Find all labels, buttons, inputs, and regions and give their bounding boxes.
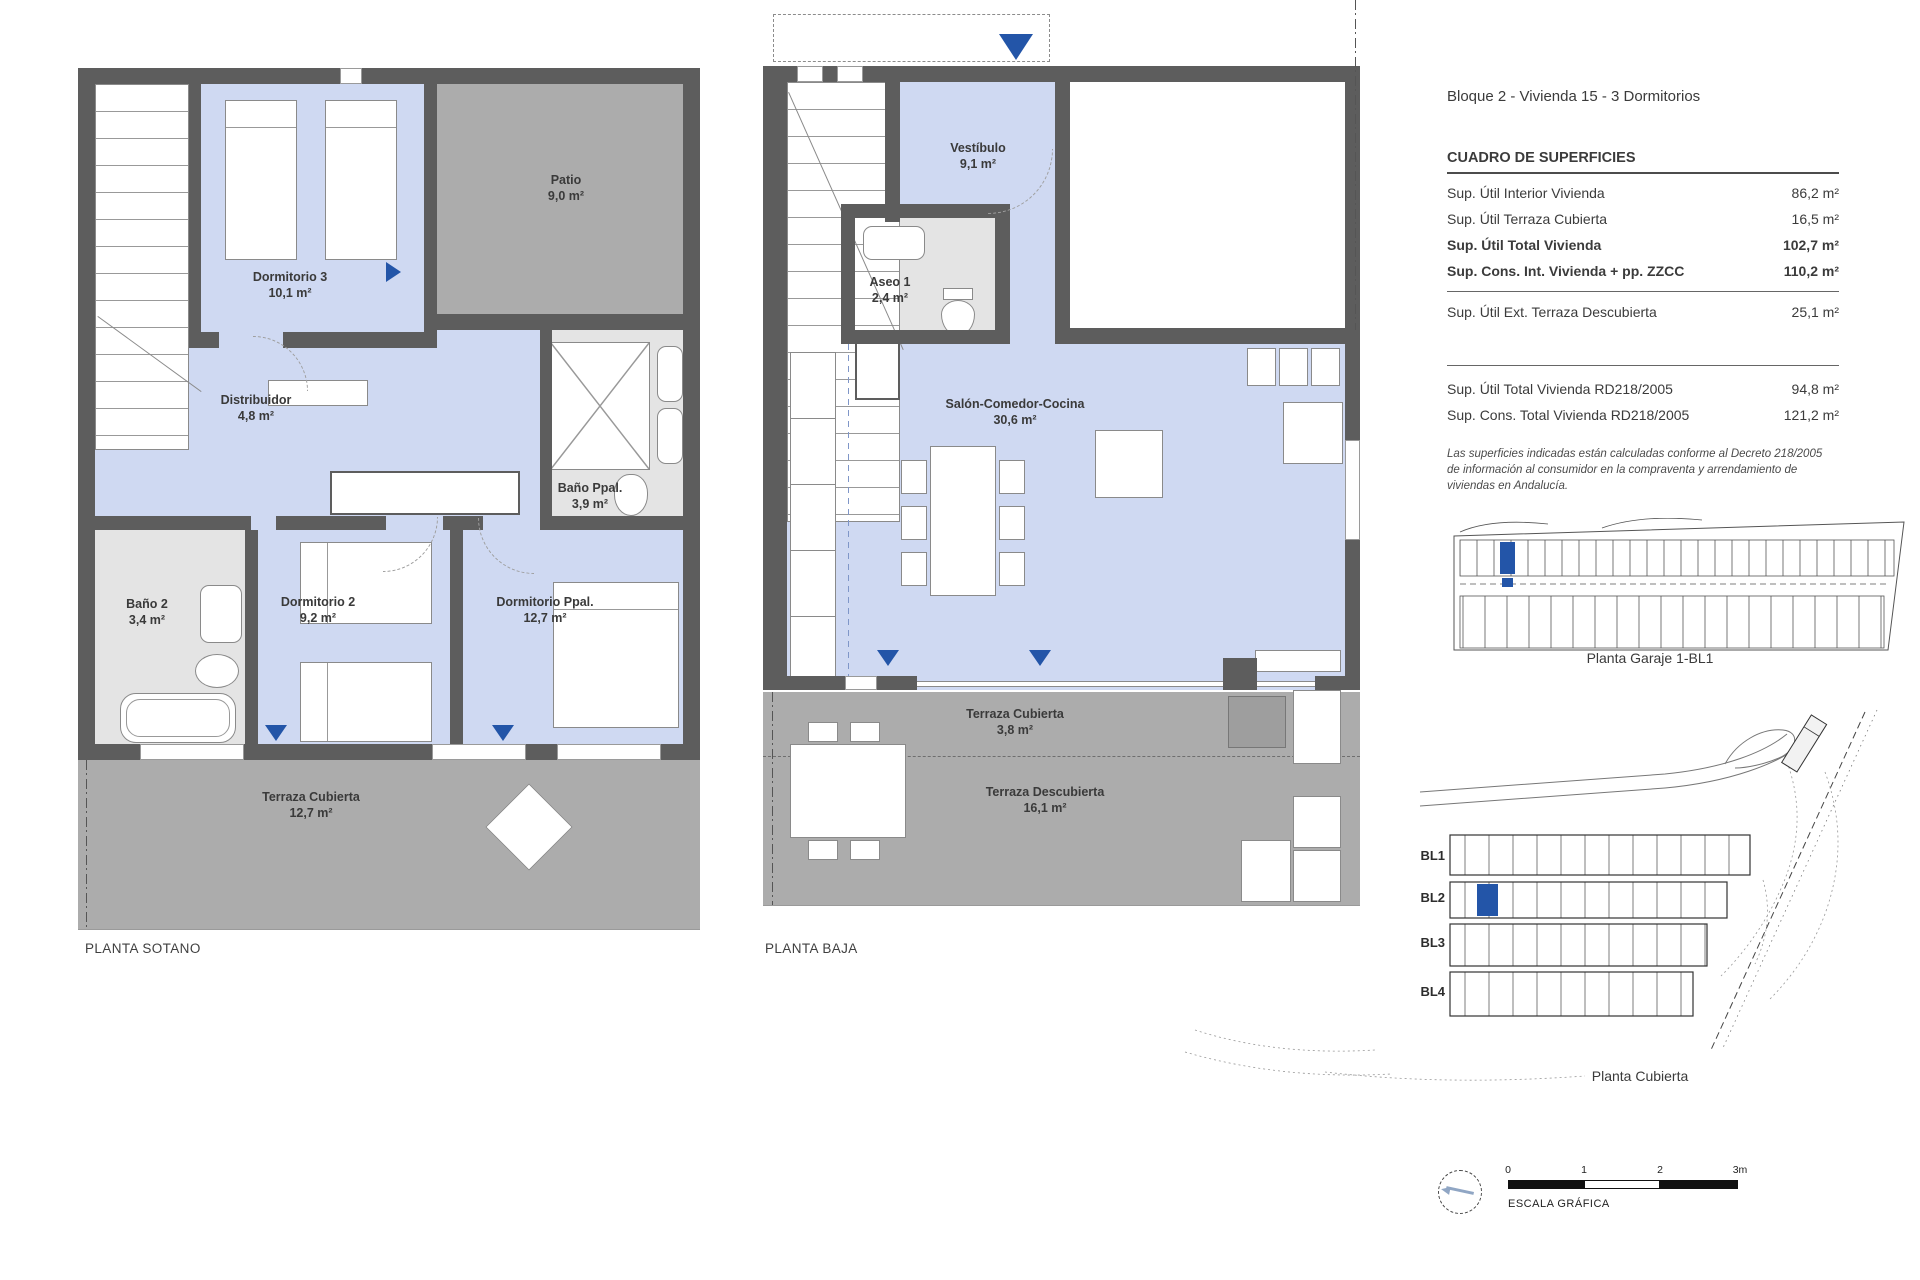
room-area: 16,1 m² [986, 800, 1105, 816]
surface-value: 110,2 m² [1784, 258, 1839, 284]
window [140, 744, 244, 760]
room-area: 2,4 m² [870, 290, 911, 306]
room-name: Salón-Comedor-Cocina [946, 396, 1085, 412]
room-name: Aseo 1 [870, 274, 911, 290]
room-label-vestibulo: Vestíbulo 9,1 m² [950, 140, 1006, 172]
surface-row: Sup. Útil Total Vivienda RD218/2005 94,8… [1447, 376, 1839, 402]
page-title: Bloque 2 - Vivienda 15 - 3 Dormitorios [1447, 88, 1700, 105]
terrace-edge [78, 929, 700, 930]
surface-value: 102,7 m² [1783, 232, 1839, 258]
window [845, 676, 877, 690]
window [837, 66, 863, 82]
chair [999, 460, 1025, 494]
sink [657, 408, 683, 464]
room-name: Dormitorio Ppal. [496, 594, 593, 610]
wall [540, 516, 683, 530]
wall [1345, 66, 1360, 690]
armchair [1095, 430, 1163, 498]
party-line [1355, 0, 1356, 330]
wall [424, 84, 437, 348]
room-area: 9,2 m² [281, 610, 355, 626]
wall [443, 516, 483, 530]
room-area: 12,7 m² [496, 610, 593, 626]
dining-table [930, 446, 996, 596]
surface-value: 121,2 m² [1784, 402, 1839, 428]
window-marker-icon [386, 262, 401, 282]
room-name: Vestíbulo [950, 140, 1006, 156]
chair [808, 722, 838, 742]
window [1257, 681, 1315, 687]
separator [1447, 365, 1839, 366]
block-label-bl1: BL1 [1405, 848, 1445, 863]
room-name: Dormitorio 3 [253, 269, 327, 285]
room-area: 3,8 m² [966, 722, 1064, 738]
sofa-seat [1311, 348, 1340, 386]
block-label-bl3: BL3 [1405, 935, 1445, 950]
room-area: 10,1 m² [253, 285, 327, 301]
site-drawing [1165, 700, 1905, 1090]
sink [657, 346, 683, 402]
window [1345, 440, 1360, 540]
wall [1055, 82, 1070, 344]
wall [245, 530, 258, 744]
wall [78, 68, 95, 760]
surface-label: Sup. Útil Terraza Cubierta [1447, 206, 1607, 232]
window [557, 744, 661, 760]
surface-row: Sup. Útil Total Vivienda 102,7 m² [1447, 232, 1839, 258]
room-name: Terraza Cubierta [262, 789, 360, 805]
chair [808, 840, 838, 860]
room-label-aseo: Aseo 1 2,4 m² [870, 274, 911, 306]
surface-row: Sup. Útil Interior Vivienda 86,2 m² [1447, 180, 1839, 206]
surfaces-disclaimer: Las superficies indicadas están calculad… [1447, 446, 1831, 494]
scale-tick: 0 [1505, 1164, 1511, 1176]
scale-segment [1660, 1180, 1738, 1189]
shower-cross-icon [551, 343, 649, 469]
surface-value: 25,1 m² [1792, 299, 1839, 325]
bed [325, 100, 397, 260]
wall [787, 676, 845, 690]
compass-needle-tip [1440, 1185, 1450, 1195]
surfaces-title: CUADRO DE SUPERFICIES [1447, 150, 1839, 174]
surface-label: Sup. Cons. Total Vivienda RD218/2005 [1447, 402, 1689, 428]
wall [189, 84, 201, 332]
surface-row: Sup. Útil Terraza Cubierta 16,5 m² [1447, 206, 1839, 232]
wall [95, 516, 251, 530]
chair [850, 840, 880, 860]
kitchen-counter [790, 352, 836, 684]
armchair [1283, 402, 1343, 464]
kitchen-boundary-line [848, 344, 849, 690]
scale-tick: 2 [1657, 1164, 1663, 1176]
surface-label: Sup. Útil Ext. Terraza Descubierta [1447, 299, 1657, 325]
wall [841, 218, 855, 344]
floorplan-sheet: Dormitorio 3 10,1 m² Patio 9,0 m² Distri… [0, 0, 1920, 1280]
plan-caption-baja: PLANTA BAJA [765, 941, 858, 956]
room-area: 3,9 m² [558, 496, 623, 512]
wall [1315, 676, 1360, 690]
plan-caption-sotano: PLANTA SOTANO [85, 941, 201, 956]
room-name: Dormitorio 2 [281, 594, 355, 610]
block-label-bl2: BL2 [1405, 890, 1445, 905]
bed [300, 662, 432, 742]
room-label-bano2: Baño 2 3,4 m² [126, 596, 168, 628]
wall [1223, 658, 1257, 690]
tv-bench [1255, 650, 1341, 672]
wall [855, 330, 1010, 344]
surface-row: Sup. Cons. Total Vivienda RD218/2005 121… [1447, 402, 1839, 428]
room-label-dormitorio-ppal: Dormitorio Ppal. 12,7 m² [496, 594, 593, 626]
window [432, 744, 526, 760]
toilet [195, 654, 239, 688]
wall [763, 66, 787, 690]
surface-label: Sup. Útil Total Vivienda [1447, 232, 1601, 258]
window-marker-icon [1029, 650, 1051, 666]
chair [999, 552, 1025, 586]
toilet-tank [943, 288, 973, 300]
scale-segment [1584, 1180, 1660, 1189]
room-label-salon: Salón-Comedor-Cocina 30,6 m² [946, 396, 1085, 428]
chair [999, 506, 1025, 540]
garage-drawing [1452, 518, 1908, 658]
room-label-bano-ppal: Baño Ppal. 3,9 m² [558, 480, 623, 512]
bathtub [120, 693, 236, 743]
wall [78, 68, 700, 84]
room-label-dormitorio3: Dormitorio 3 10,1 m² [253, 269, 327, 301]
wall [424, 314, 683, 330]
wall [995, 218, 1010, 344]
sofa-seat [1279, 348, 1308, 386]
room-area: 9,1 m² [950, 156, 1006, 172]
chair [901, 506, 927, 540]
room-name: Baño 2 [126, 596, 168, 612]
room-label-distribuidor: Distribuidor 4,8 m² [221, 392, 292, 424]
window [340, 68, 362, 84]
garage-caption: Planta Garaje 1-BL1 [1587, 650, 1714, 666]
wall [540, 330, 552, 530]
room-area: 12,7 m² [262, 805, 360, 821]
scale-label: ESCALA GRÁFICA [1508, 1198, 1610, 1210]
chair [901, 552, 927, 586]
wall [877, 676, 917, 690]
sofa-seat [1247, 348, 1276, 386]
room-area: 9,0 m² [548, 188, 584, 204]
room-area: 4,8 m² [221, 408, 292, 424]
property-line [772, 692, 773, 906]
surfaces-panel: CUADRO DE SUPERFICIES Sup. Útil Interior… [1447, 150, 1839, 428]
sink [200, 585, 242, 643]
window [797, 66, 823, 82]
room-label-terraza-cubierta: Terraza Cubierta 3,8 m² [966, 706, 1064, 738]
property-line [86, 760, 87, 930]
room-label-patio: Patio 9,0 m² [548, 172, 584, 204]
sotano-plan: Dormitorio 3 10,1 m² Patio 9,0 m² Distri… [78, 66, 700, 932]
entry-arrow-icon [999, 34, 1033, 60]
surface-value: 86,2 m² [1792, 180, 1839, 206]
surface-label: Sup. Útil Total Vivienda RD218/2005 [1447, 376, 1673, 402]
wall [885, 82, 900, 222]
window-marker-icon [877, 650, 899, 666]
highlighted-unit [1477, 884, 1498, 916]
surface-value: 94,8 m² [1792, 376, 1839, 402]
wall [276, 516, 386, 530]
room-name: Patio [548, 172, 584, 188]
sink [863, 226, 925, 260]
garage-plan [1452, 518, 1908, 658]
block-label-bl4: BL4 [1405, 984, 1445, 999]
window-marker-icon [265, 725, 287, 741]
wardrobe [330, 471, 520, 515]
outdoor-table [790, 744, 906, 838]
staircase [95, 84, 189, 450]
window [917, 681, 1223, 687]
wall [450, 530, 463, 744]
site-caption: Planta Cubierta [1592, 1068, 1689, 1084]
north-compass-icon [1438, 1170, 1482, 1214]
surface-value: 16,5 m² [1792, 206, 1839, 232]
wall [683, 68, 700, 760]
room-name: Distribuidor [221, 392, 292, 408]
shower [550, 342, 650, 470]
separator [1447, 291, 1839, 292]
room-label-terraza-descubierta: Terraza Descubierta 16,1 m² [986, 784, 1105, 816]
room-name: Baño Ppal. [558, 480, 623, 496]
wall [841, 204, 1010, 218]
surface-label: Sup. Cons. Int. Vivienda + pp. ZZCC [1447, 258, 1684, 284]
window-marker-icon [492, 725, 514, 741]
chair [850, 722, 880, 742]
surface-label: Sup. Útil Interior Vivienda [1447, 180, 1605, 206]
bed [225, 100, 297, 260]
surface-row: Sup. Cons. Int. Vivienda + pp. ZZCC 110,… [1447, 258, 1839, 284]
room-label-dormitorio2: Dormitorio 2 9,2 m² [281, 594, 355, 626]
chair [901, 460, 927, 494]
scale-segment [1508, 1180, 1584, 1189]
wall [283, 332, 424, 348]
site-plan: BL1 BL2 BL3 BL4 Planta Cubierta [1165, 700, 1905, 1090]
scale-tick: 3m [1733, 1164, 1748, 1176]
wall [1055, 328, 1360, 344]
room-area: 3,4 m² [126, 612, 168, 628]
terraza-floor [78, 760, 700, 930]
room-area: 30,6 m² [946, 412, 1085, 428]
room-name: Terraza Descubierta [986, 784, 1105, 800]
room-name: Terraza Cubierta [966, 706, 1064, 722]
wall [189, 332, 219, 348]
room-label-terraza-cubierta: Terraza Cubierta 12,7 m² [262, 789, 360, 821]
surface-row: Sup. Útil Ext. Terraza Descubierta 25,1 … [1447, 299, 1839, 325]
scale-tick: 1 [1581, 1164, 1587, 1176]
